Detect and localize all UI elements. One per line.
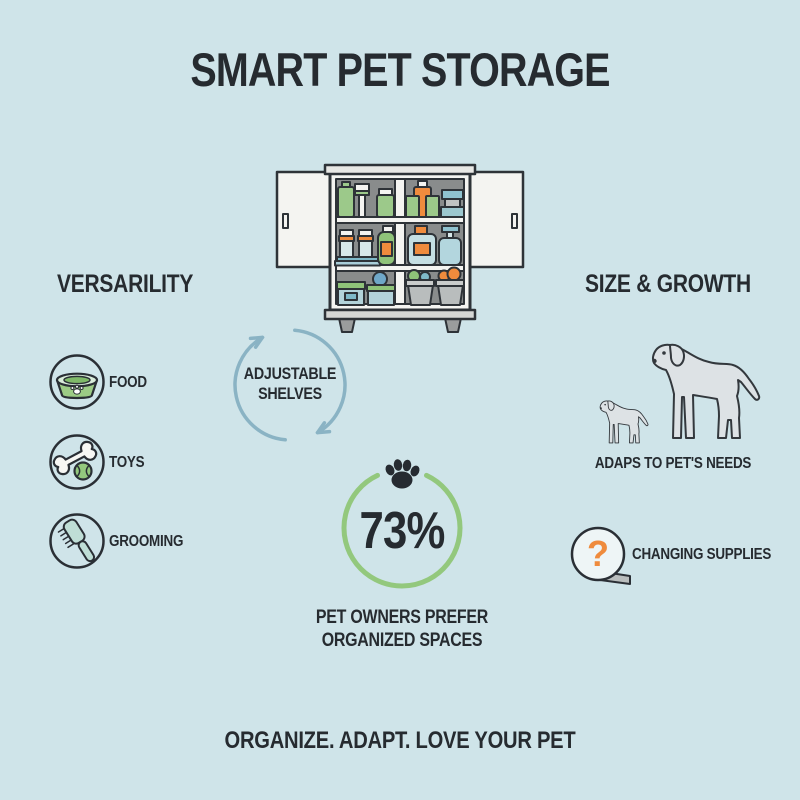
question-mark-tag-icon: ? (566, 523, 638, 595)
versatility-item-toys-label: TOYS (109, 454, 144, 472)
cabinet-divider (395, 179, 405, 304)
size-growth-caption: ADAPS TO PET'S NEEDS (589, 455, 757, 473)
puppy (600, 401, 648, 443)
bone-and-ball-icon (48, 433, 106, 491)
paw-print-icon (384, 459, 421, 489)
tagline: ORGANIZE. ADAPT. LOVE YOUR PET (64, 727, 736, 755)
stat-caption: PET OWNERS PREFER ORGANIZED SPACES (276, 606, 528, 652)
pet-food-bowl-icon (48, 353, 106, 411)
adjustable-shelves-caption: ADJUSTABLE SHELVES (235, 364, 344, 404)
size-growth-heading: SIZE & GROWTH (585, 270, 751, 299)
storage-cabinet-illustration (275, 158, 525, 344)
versatility-item-food-label: FOOD (109, 374, 147, 392)
large-dog (652, 345, 759, 438)
infographic-poster: SMART PET STORAGE (0, 0, 800, 800)
cabinet-door-left (277, 172, 330, 267)
grooming-brush-icon (48, 512, 106, 570)
versatility-heading: VERSARILITY (57, 270, 193, 299)
question-mark-glyph: ? (587, 533, 609, 574)
changing-supplies-label: CHANGING SUPPLIES (632, 546, 771, 564)
stat-value: 73% (343, 501, 461, 561)
page-title: SMART PET STORAGE (64, 42, 736, 97)
versatility-item-grooming-label: GROOMING (109, 533, 183, 551)
shelf-items-tubes (335, 226, 395, 266)
dogs-size-comparison-illustration (597, 336, 767, 448)
cabinet-door-right (470, 172, 523, 267)
